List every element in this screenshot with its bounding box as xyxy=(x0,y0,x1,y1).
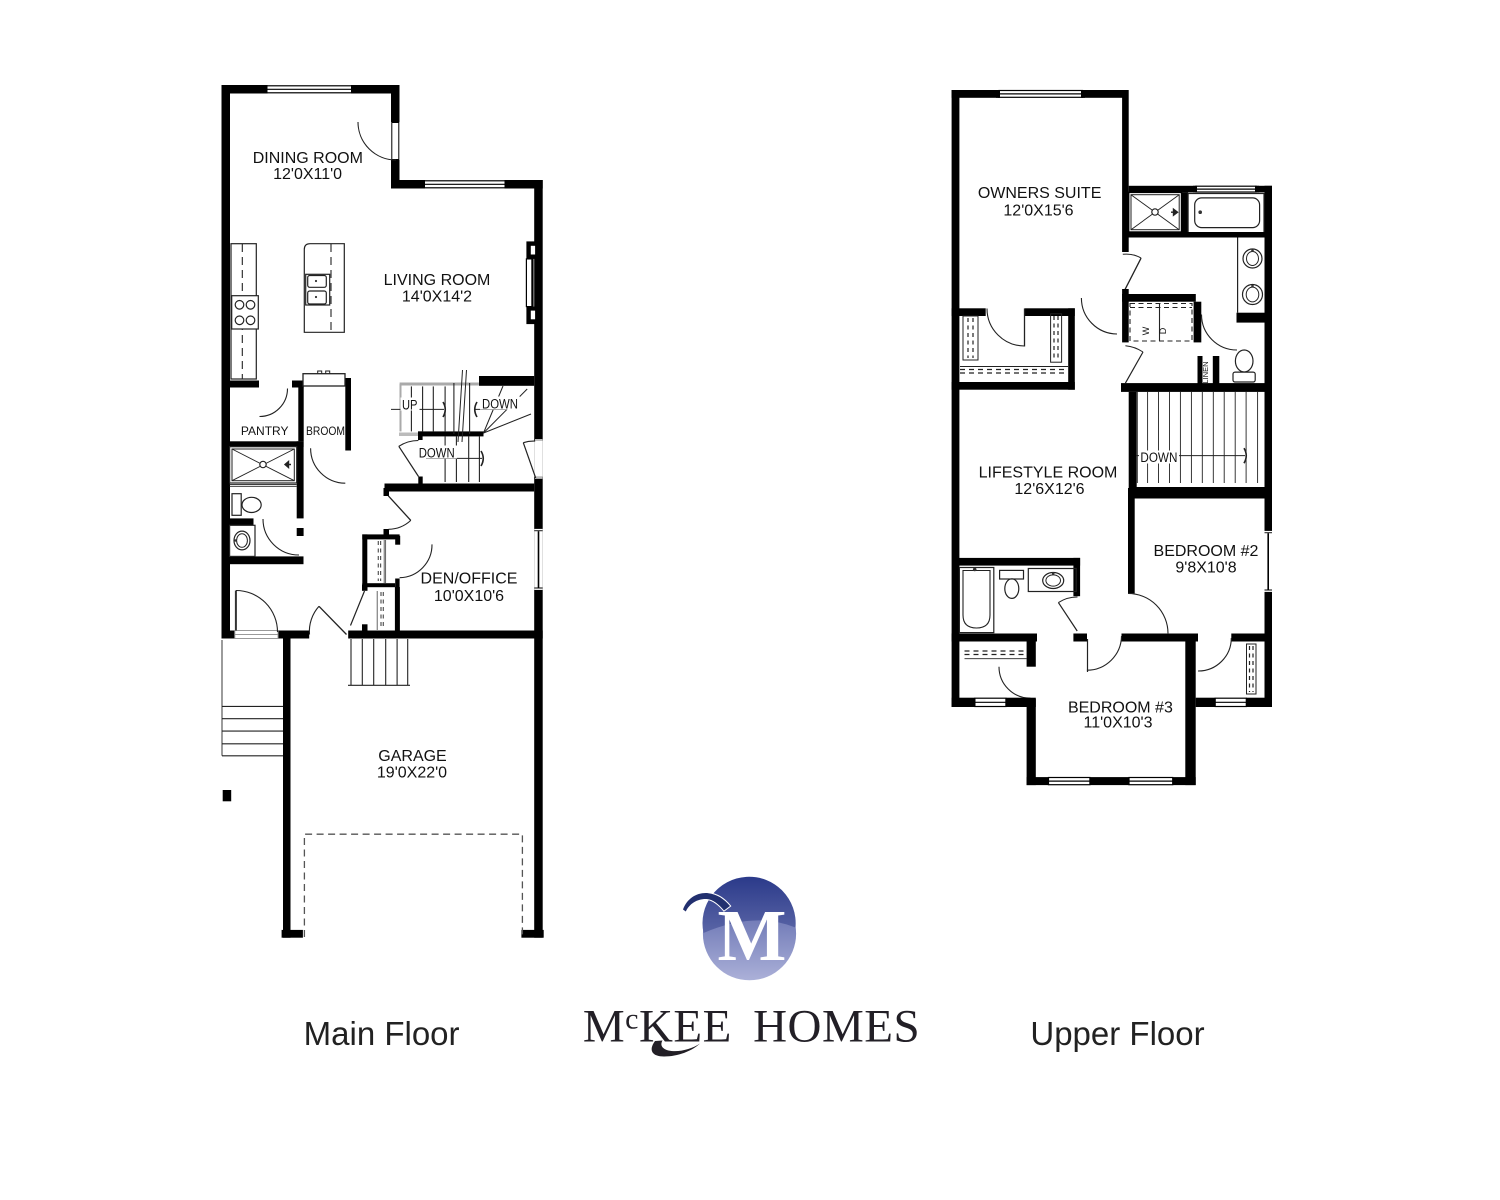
svg-text:BEDROOM #2: BEDROOM #2 xyxy=(1154,543,1259,560)
svg-text:Upper Floor: Upper Floor xyxy=(1030,1015,1204,1052)
svg-text:PANTRY: PANTRY xyxy=(241,424,289,438)
svg-text:UP: UP xyxy=(402,397,418,412)
svg-text:12'0X15'6: 12'0X15'6 xyxy=(1003,203,1073,220)
svg-text:19'0X22'0: 19'0X22'0 xyxy=(377,765,447,782)
svg-text:LIVING ROOM: LIVING ROOM xyxy=(384,272,491,289)
svg-text:McKEE HOMES: McKEE HOMES xyxy=(583,1001,920,1053)
svg-text:LIFESTYLE ROOM: LIFESTYLE ROOM xyxy=(979,465,1118,482)
svg-text:DOWN: DOWN xyxy=(419,445,455,460)
svg-text:D: D xyxy=(1158,327,1168,334)
svg-text:OWNERS SUITE: OWNERS SUITE xyxy=(978,185,1102,202)
svg-text:11'0X10'3: 11'0X10'3 xyxy=(1084,715,1153,732)
svg-text:Main Floor: Main Floor xyxy=(304,1015,460,1052)
svg-text:9'8X10'8: 9'8X10'8 xyxy=(1175,560,1236,577)
svg-text:12'6X12'6: 12'6X12'6 xyxy=(1014,481,1084,498)
svg-text:10'0X10'6: 10'0X10'6 xyxy=(434,588,504,605)
svg-text:DINING ROOM: DINING ROOM xyxy=(253,150,363,167)
svg-text:W: W xyxy=(1141,326,1151,335)
svg-text:GARAGE: GARAGE xyxy=(378,748,446,765)
svg-text:DOWN: DOWN xyxy=(1140,450,1177,465)
svg-text:LINEN: LINEN xyxy=(1201,361,1210,383)
svg-text:DOWN: DOWN xyxy=(482,397,518,412)
svg-text:14'0X14'2: 14'0X14'2 xyxy=(402,289,472,306)
svg-text:M: M xyxy=(718,895,787,976)
svg-text:12'0X11'0: 12'0X11'0 xyxy=(273,166,342,183)
svg-text:DEN/OFFICE: DEN/OFFICE xyxy=(421,571,518,588)
svg-text:BROOM: BROOM xyxy=(306,424,345,438)
